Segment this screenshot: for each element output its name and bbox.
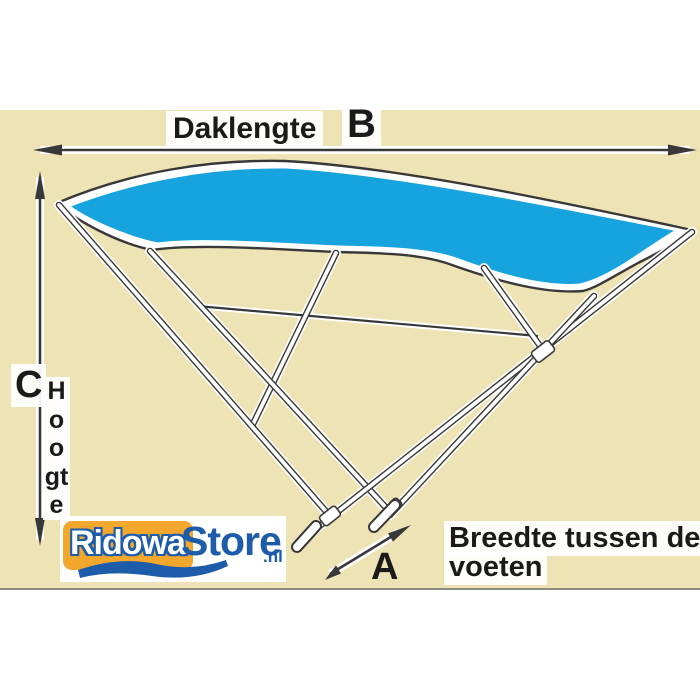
label-daklengte: Daklengte [166, 111, 323, 147]
diagram-canvas: Daklengte B C Hoogte A Breedte tussen de… [0, 0, 700, 700]
label-feet-width-line2: voeten [444, 550, 547, 585]
logo-wave-icon [74, 554, 232, 582]
logo-ridowastore: Ridowa Store .nl [60, 516, 286, 582]
logo-text-nl: .nl [263, 547, 283, 567]
stay-line [197, 306, 538, 336]
label-dimension-b: B [342, 102, 381, 147]
label-dimension-a: A [371, 546, 398, 589]
label-dimension-c: C [11, 364, 46, 407]
bimini-canopy [57, 161, 692, 292]
label-hoogte-vertical: Hoogte [43, 377, 70, 520]
